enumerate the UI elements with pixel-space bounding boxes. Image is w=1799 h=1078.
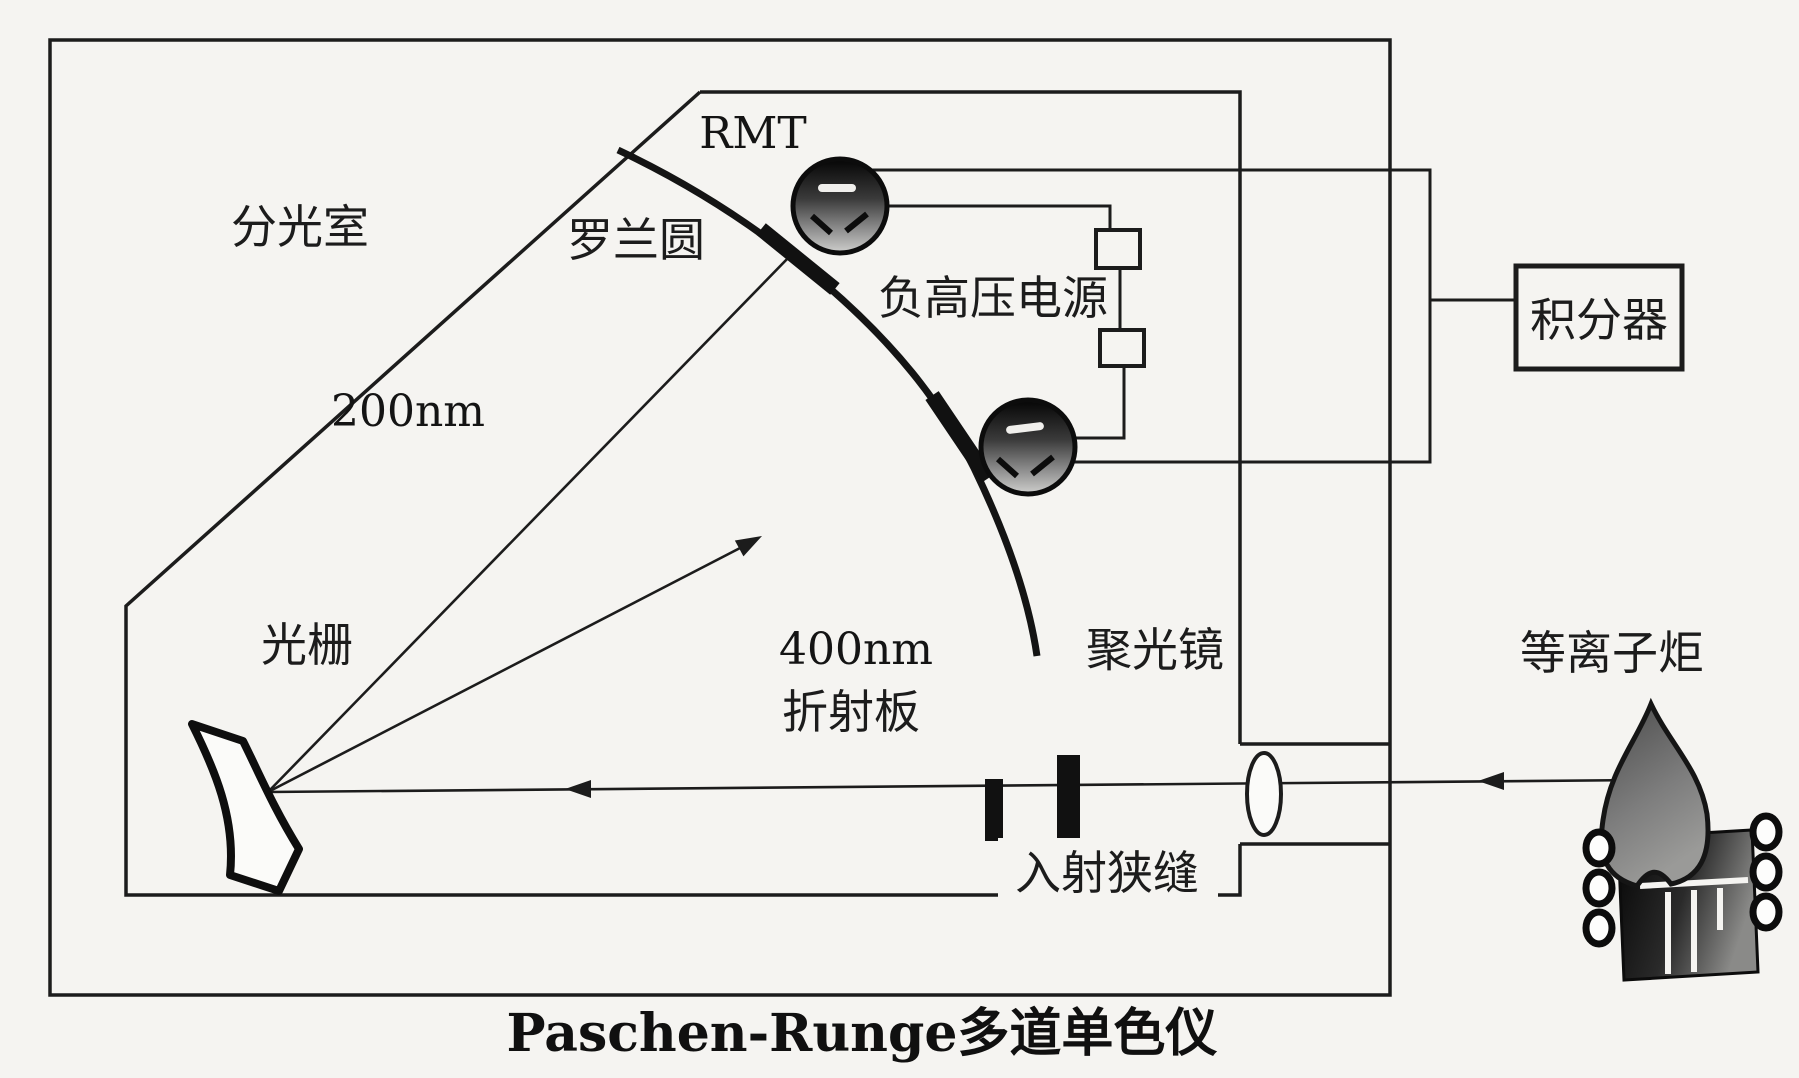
figure-title: Paschen-Runge多道单色仪 [507, 1003, 1218, 1064]
pmt1-tube-icon [793, 159, 887, 253]
hv-connector-box-upper [1096, 230, 1140, 268]
label-entrance-slit: 入射狭缝 [1015, 846, 1199, 900]
label-200nm: 200nm [331, 386, 485, 437]
grating-icon [192, 724, 299, 891]
label-rowland-circle: 罗兰圆 [567, 213, 705, 267]
hv-connector-box-lower [1100, 330, 1144, 366]
label-hv-supply: 负高压电源 [878, 271, 1108, 325]
label-rmt: RMT [699, 108, 807, 159]
hv-wire-pmt1 [887, 206, 1110, 230]
diffracted-ray-200nm [268, 256, 790, 792]
entrance-slit-bar [1057, 755, 1080, 849]
label-condenser-lens: 聚光镜 [1086, 623, 1224, 677]
label-grating: 光栅 [261, 618, 353, 672]
label-integrator: 积分器 [1530, 293, 1668, 347]
label-plasma-torch: 等离子炬 [1520, 626, 1704, 680]
beam-arrowhead-inner [565, 780, 591, 798]
figure-canvas: 分光室 罗兰圆 RMT 200nm 负高压电源 积分器 光栅 400nm 折射板… [0, 0, 1799, 1078]
label-spectral-chamber: 分光室 [231, 200, 369, 254]
pmt-detector-1 [793, 159, 887, 253]
label-400nm: 400nm [779, 624, 933, 675]
hv-wire-pmt2 [1074, 366, 1124, 438]
monochromator-diagram: 分光室 罗兰圆 RMT 200nm 负高压电源 积分器 光栅 400nm 折射板… [0, 0, 1799, 1078]
condenser-lens-icon [1247, 753, 1281, 835]
pmt2-tube-icon [981, 400, 1075, 494]
pmt1-window-mark [818, 184, 856, 192]
torch-flame [1601, 704, 1708, 886]
incident-beam [268, 780, 1643, 792]
beam-arrowhead-outer [1478, 772, 1504, 790]
refraction-plate-bar [985, 779, 1003, 841]
plasma-torch-icon [1586, 704, 1779, 980]
label-refraction-plate: 折射板 [782, 685, 920, 739]
pmt-detector-2 [981, 400, 1075, 494]
ray-400nm-arrowhead [735, 528, 766, 556]
